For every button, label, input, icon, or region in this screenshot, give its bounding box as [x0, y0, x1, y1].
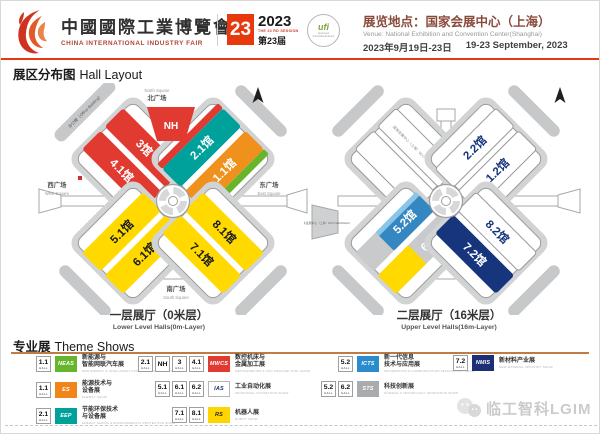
theme-show-ias: 5.1HALL 6.1HALL 6.2HALL IAS 工业自动化展INDUST…	[155, 381, 288, 397]
hall-badge: 1.1HALL	[36, 356, 51, 372]
north-square-zh: 北广场	[147, 93, 167, 102]
upper-level-map: 国家会展中心（上海）NCC-SHANGHAI 国家会展中心（上海）NCC-SHA…	[304, 83, 594, 315]
north-square-en: North Square	[145, 88, 171, 93]
west-square-zh: 西广场	[47, 180, 67, 189]
upper-caption-zh: 二层展厅（16米层）	[304, 307, 594, 323]
hall-layout-title: 展区分布图Hall Layout	[13, 64, 142, 83]
theme-show-name: 节能环保技术与设备展ENERGY SAVING & ENVIRONMENTAL …	[82, 407, 175, 425]
hall-badge: 7.2HALL	[453, 355, 468, 371]
ufi-logo: ufi Approved International Event	[307, 14, 340, 47]
south-square-en: South Square	[163, 295, 189, 300]
west-landmark-marker	[78, 176, 82, 180]
mwcs-logo: MWCS	[208, 356, 230, 372]
theme-show-name: 数控机床与金属加工展METALWORKING & CNC MACHINE TOO…	[235, 355, 310, 373]
theme-show-eep: 2.1HALL EEP 节能环保技术与设备展ENERGY SAVING & EN…	[36, 407, 175, 425]
wechat-icon	[456, 397, 482, 419]
office-building-label: 办公楼（Office Building）	[66, 92, 103, 129]
theme-show-name: 能源技术与设备展ENERGY SHOW	[82, 381, 112, 399]
lower-map-caption: 一层展厅（0米层） Lower Level Halls(0m-Layer)	[9, 307, 309, 331]
hall-badge: 8.1HALL	[189, 407, 204, 423]
hall-badge: 6.2HALL	[189, 381, 204, 397]
central-hub-upper	[430, 185, 463, 218]
lower-caption-en: Lower Level Halls(0m-Layer)	[9, 324, 309, 331]
header-rule	[1, 58, 600, 60]
theme-show-nmis: 7.2HALL NMIS 新材料产业展NEW MATERIAL INDUSTRY…	[453, 355, 553, 371]
central-hub-lower	[157, 185, 190, 218]
theme-show-name: 新材料产业展NEW MATERIAL INDUSTRY SHOW	[499, 358, 553, 369]
hall-badge: 5.2HALL	[338, 356, 353, 372]
hall-badge: 5.2HALL	[321, 381, 336, 397]
east-square-zh: 东广场	[259, 180, 279, 189]
hall-badge: 7.1HALL	[172, 407, 187, 423]
south-square-zh: 南广场	[166, 284, 186, 293]
fair-title-en: CHINA INTERNATIONAL INDUSTRY FAIR	[61, 40, 232, 47]
rs-logo: RS	[208, 407, 230, 423]
east-square-en: East Square	[257, 191, 281, 196]
hall-badge: 3HALL	[172, 356, 187, 372]
theme-show-es: 1.1HALL ES 能源技术与设备展ENERGY SHOW	[36, 381, 112, 399]
venue-block: 展览地点：国家会展中心（上海） Venue: National Exhibiti…	[363, 11, 568, 54]
upper-map-caption: 二层展厅（16米层） Upper Level Halls(16m-Layer)	[304, 307, 594, 331]
venue-line-en: Venue: National Exhibition and Conventio…	[363, 31, 568, 38]
ias-logo: IAS	[208, 381, 230, 397]
theme-shows-rule	[11, 352, 589, 354]
watermark-text: 临工智科LGIM	[486, 398, 592, 419]
upper-caption-en: Upper Level Halls(16m-Layer)	[304, 324, 594, 331]
theme-show-name: 科技创新展SCIENCE & TECHNOLOGY INNOVATION SHO…	[384, 384, 458, 395]
theme-show-name: 工业自动化展INDUSTRIAL AUTOMATION SHOW	[235, 384, 288, 395]
watermark: 临工智科LGIM	[456, 397, 592, 419]
ncc-west-label: 国家会展中心（上海）NCC-SHANGHAI	[304, 221, 350, 225]
sts-logo: STS	[357, 381, 379, 397]
fair-logo-icon	[13, 8, 57, 59]
icts-logo: ICTS	[357, 356, 379, 372]
eep-logo: EEP	[55, 408, 77, 424]
header-divider	[217, 14, 218, 46]
lower-caption-zh: 一层展厅（0米层）	[9, 307, 309, 323]
bottom-dashed-border	[5, 425, 597, 426]
lower-level-map: 办公楼（Office Building） 3馆 4.1馆 2.1馆 1.1馆	[9, 83, 309, 315]
hall-badge: 1.1HALL	[36, 382, 51, 398]
compass-icon-upper	[555, 87, 566, 103]
west-square-en: West Square	[45, 191, 70, 196]
hall-badge: NH	[155, 356, 170, 372]
hall-layout-title-en: Hall Layout	[80, 68, 143, 82]
session-block: 2023 THE 23 RD SESSION 第23届	[258, 14, 298, 47]
fair-title-zh: 中國國際工業博覽會	[61, 13, 232, 38]
theme-show-name: 机器人展ROBOT SHOW	[235, 410, 259, 421]
neas-logo: NEAS	[55, 356, 77, 372]
session-year: 2023	[258, 14, 298, 29]
hall-badge: 6.2HALL	[338, 381, 353, 397]
session-number-badge: 23	[227, 14, 254, 45]
ncc-west-wedge: 国家会展中心（上海）NCC-SHANGHAI	[304, 205, 350, 239]
date-zh: 2023年9月19日-23日	[363, 40, 452, 54]
es-logo: ES	[55, 382, 77, 398]
theme-show-rs: 7.1HALL 8.1HALL RS 机器人展ROBOT SHOW	[172, 407, 259, 423]
hall-badge: 6.1HALL	[172, 381, 187, 397]
date-en: 19-23 September, 2023	[466, 40, 568, 54]
venue-line-zh: 展览地点：国家会展中心（上海）	[363, 11, 568, 30]
fair-title-block: 中國國際工業博覽會 CHINA INTERNATIONAL INDUSTRY F…	[61, 13, 232, 47]
hall-badge: 4.1HALL	[189, 356, 204, 372]
hall-badge: 2.1HALL	[36, 408, 51, 424]
theme-show-sts: 5.2HALL 6.2HALL STS 科技创新展SCIENCE & TECHN…	[321, 381, 458, 397]
nmis-logo: NMIS	[472, 355, 494, 371]
theme-show-mwcs: 2.1HALL NH 3HALL 4.1HALL MWCS 数控机床与金属加工展…	[138, 355, 310, 373]
session-label-en: THE 23 RD SESSION	[258, 29, 298, 33]
hall-badge: 5.1HALL	[155, 381, 170, 397]
fair-hall-layout-poster: 中國國際工業博覽會 CHINA INTERNATIONAL INDUSTRY F…	[0, 0, 600, 434]
hall-badge: 2.1HALL	[138, 356, 153, 372]
hall-layout-title-zh: 展区分布图	[13, 68, 76, 82]
session-label-zh: 第23届	[258, 34, 298, 47]
ufi-subtext: Approved International Event	[311, 32, 337, 38]
hall-nh-label: NH	[164, 121, 178, 132]
ufi-label: ufi	[318, 23, 329, 32]
